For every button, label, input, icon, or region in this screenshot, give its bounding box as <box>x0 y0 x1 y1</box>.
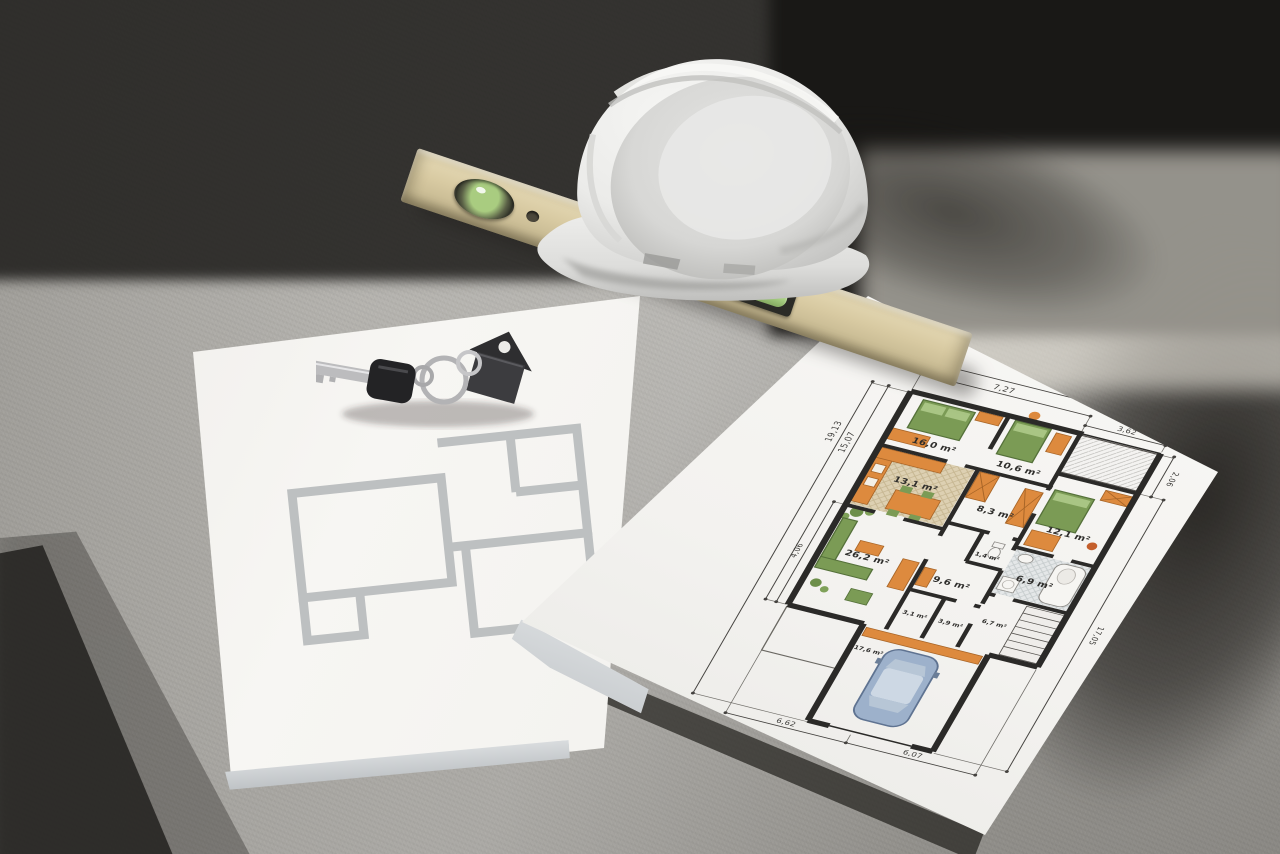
room-label-corridor: 9,6 m² <box>930 575 971 593</box>
dim-7-27: 7,27 <box>991 382 1017 395</box>
room-label-hallway: 8,3 m² <box>974 504 1015 522</box>
car <box>845 646 947 731</box>
hard-hat <box>520 30 895 322</box>
vial-glint <box>475 186 486 195</box>
dim-15-07: 15,07 <box>835 431 857 454</box>
room-label-garage: 17,6 m² <box>852 645 884 658</box>
bedroom-3-furniture <box>1024 479 1133 562</box>
room-label-storage-2: 3,9 m² <box>937 618 964 630</box>
house-keys <box>316 320 556 438</box>
construction-scene-photo: 7,27 10,89 3,62 2,06 17,05 19,13 15,07 4… <box>0 0 1280 854</box>
level-round-vial <box>449 172 520 227</box>
house-keychain-fob <box>458 323 540 407</box>
room-label-storage-1: 3,1 m² <box>901 609 928 621</box>
keys-shadow <box>342 401 534 427</box>
key <box>316 344 417 405</box>
room-label-utility: 6,7 m² <box>980 619 1007 631</box>
dim-2-06: 2,06 <box>1164 471 1182 488</box>
room-floors <box>822 394 1156 611</box>
